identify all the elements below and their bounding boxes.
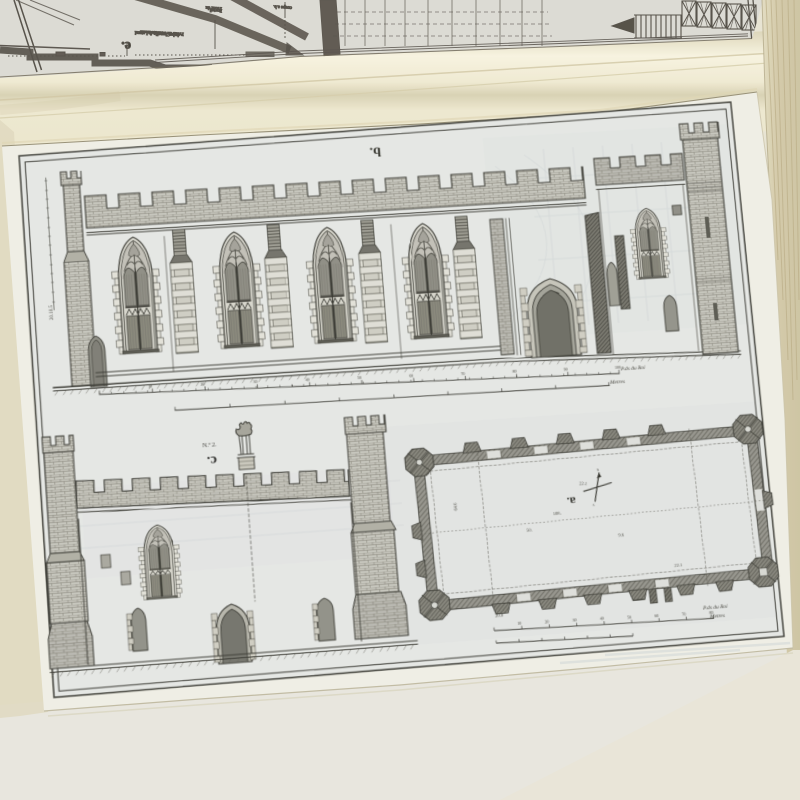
svg-text:50: 50 bbox=[357, 375, 361, 380]
svg-text:20.10.5: 20.10.5 bbox=[49, 305, 55, 321]
svg-text:40: 40 bbox=[600, 616, 604, 621]
svg-text:Portail: Portail bbox=[209, 8, 222, 14]
svg-text:N.º 2.: N.º 2. bbox=[202, 442, 217, 449]
svg-text:e.: e. bbox=[121, 38, 131, 53]
svg-text:22.1: 22.1 bbox=[579, 481, 587, 486]
svg-text:50: 50 bbox=[627, 614, 631, 619]
svg-text:108.: 108. bbox=[553, 510, 561, 516]
svg-text:90: 90 bbox=[563, 367, 567, 372]
svg-text:20.0: 20.0 bbox=[495, 612, 504, 618]
svg-text:10: 10 bbox=[517, 621, 521, 626]
svg-text:Metres: Metres bbox=[709, 613, 726, 620]
svg-text:c.: c. bbox=[206, 452, 217, 468]
svg-text:30: 30 bbox=[572, 618, 576, 623]
svg-text:20: 20 bbox=[200, 381, 204, 386]
svg-text:10: 10 bbox=[148, 383, 152, 388]
svg-text:22.1: 22.1 bbox=[674, 562, 682, 568]
svg-text:80: 80 bbox=[512, 369, 516, 374]
svg-text:60: 60 bbox=[654, 613, 658, 618]
svg-text:40: 40 bbox=[305, 377, 309, 382]
svg-text:70: 70 bbox=[461, 371, 465, 376]
svg-text:20: 20 bbox=[545, 619, 549, 624]
svg-text:a.: a. bbox=[566, 494, 577, 509]
svg-text:30: 30 bbox=[253, 379, 257, 384]
svg-text:70: 70 bbox=[682, 611, 686, 616]
svg-text:64.6: 64.6 bbox=[452, 502, 458, 511]
svg-text:b.: b. bbox=[369, 144, 381, 159]
svg-text:Metres: Metres bbox=[609, 379, 625, 386]
svg-text:60: 60 bbox=[409, 373, 413, 378]
svg-text:50.: 50. bbox=[526, 527, 532, 533]
